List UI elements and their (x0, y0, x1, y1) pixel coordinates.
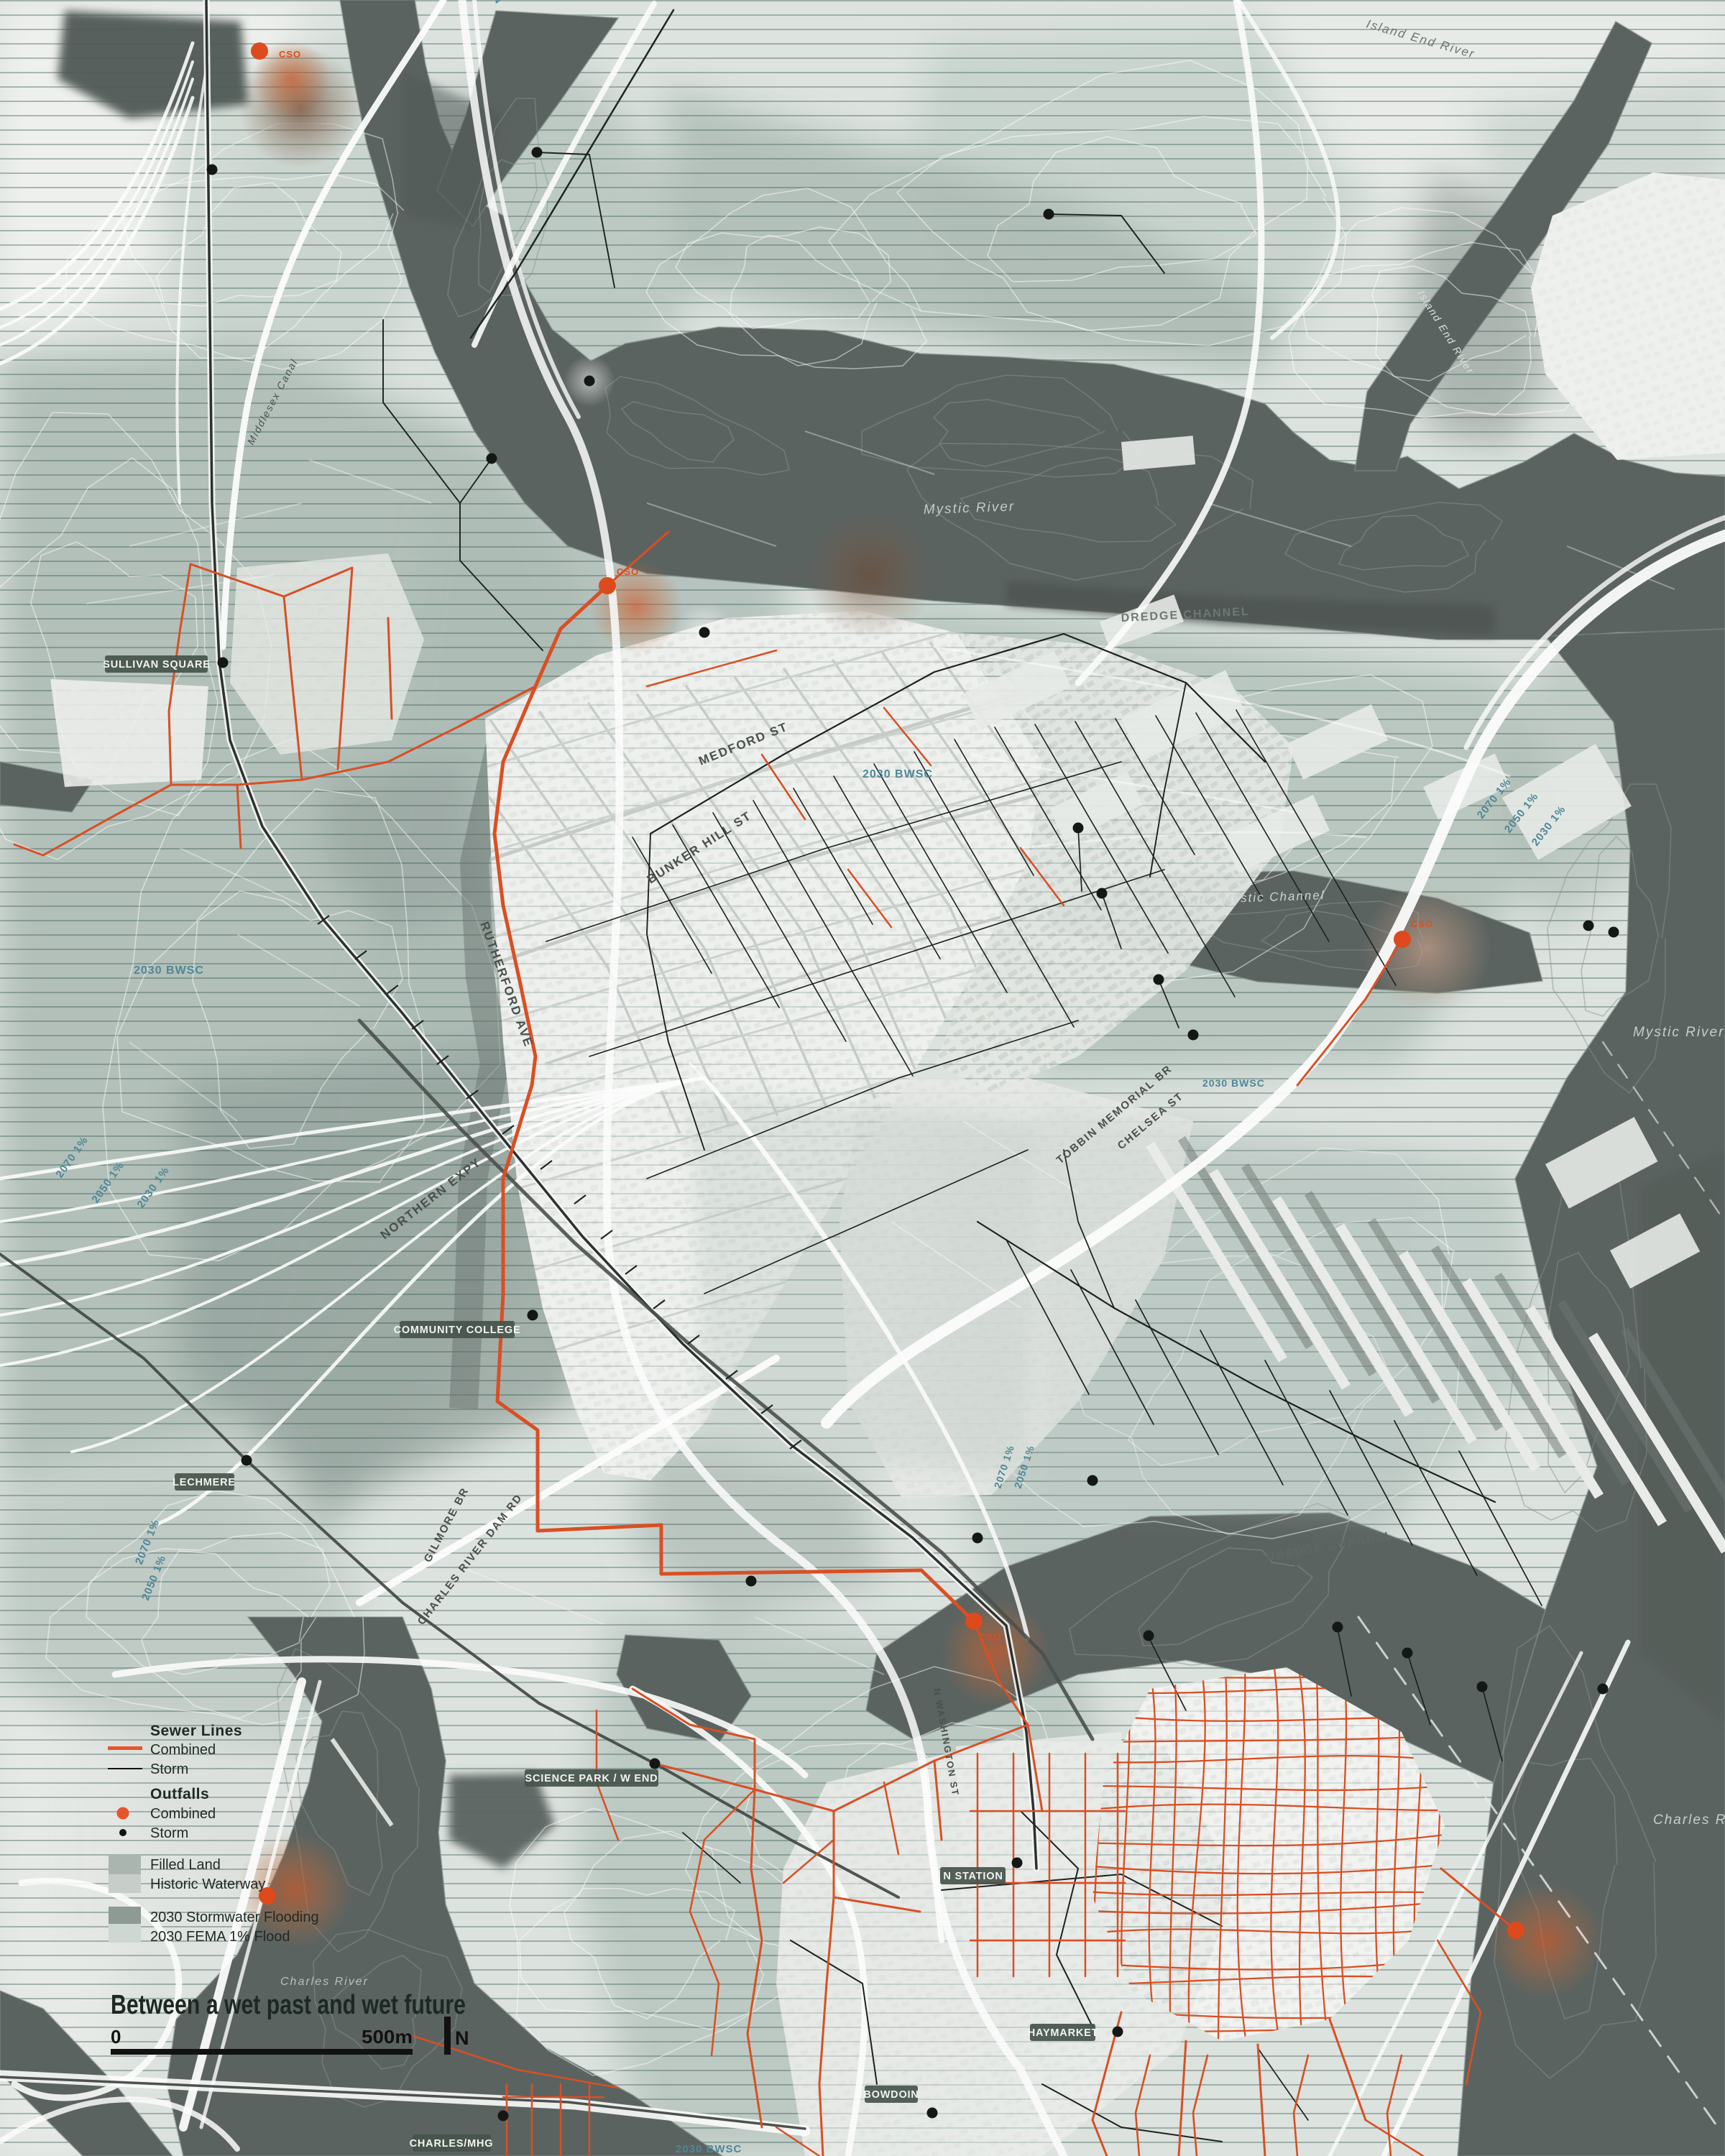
svg-text:HAYMARKET: HAYMARKET (1028, 2027, 1099, 2039)
svg-text:Storm: Storm (150, 1761, 188, 1777)
svg-text:CSO: CSO (979, 1631, 1001, 1642)
svg-text:2030 BWSC: 2030 BWSC (676, 2143, 742, 2155)
svg-text:SCIENCE PARK / W END: SCIENCE PARK / W END (525, 1773, 658, 1784)
svg-text:N: N (455, 2027, 469, 2049)
svg-text:Sewer Lines: Sewer Lines (150, 1723, 242, 1739)
svg-text:Filled Land: Filled Land (150, 1857, 221, 1873)
svg-text:Between a wet past and wet fut: Between a wet past and wet future (111, 1990, 466, 2020)
svg-text:CSO: CSO (279, 49, 301, 60)
svg-text:BOWDOIN: BOWDOIN (863, 2089, 919, 2101)
svg-text:CHARLES/MHG: CHARLES/MHG (410, 2138, 494, 2150)
svg-text:2030 Stormwater Flooding: 2030 Stormwater Flooding (150, 1909, 319, 1925)
svg-text:Outfalls: Outfalls (150, 1786, 209, 1802)
svg-text:COMMUNITY COLLEGE: COMMUNITY COLLEGE (394, 1325, 521, 1336)
svg-text:2030 BWSC: 2030 BWSC (134, 964, 204, 977)
svg-text:Combined: Combined (150, 1806, 216, 1822)
svg-text:N STATION: N STATION (943, 1871, 1003, 1882)
svg-text:Historic Waterway: Historic Waterway (150, 1876, 265, 1892)
svg-text:CSO: CSO (617, 566, 639, 577)
svg-text:Charles River: Charles River (1653, 1812, 1725, 1828)
svg-text:LECHMERE: LECHMERE (172, 1477, 236, 1488)
svg-text:SULLIVAN SQUARE: SULLIVAN SQUARE (103, 659, 211, 671)
svg-text:2030 BWSC: 2030 BWSC (1202, 1077, 1265, 1089)
svg-text:CSO: CSO (1411, 918, 1433, 929)
svg-text:Charles River: Charles River (280, 1976, 369, 1988)
svg-text:0: 0 (111, 2026, 121, 2047)
svg-text:2030 BWSC: 2030 BWSC (862, 768, 933, 780)
svg-text:Storm: Storm (150, 1825, 188, 1841)
svg-text:Mystic River: Mystic River (923, 499, 1015, 517)
svg-text:Mystic River: Mystic River (1633, 1025, 1724, 1040)
svg-text:500m: 500m (362, 2026, 413, 2047)
svg-text:2030 FEMA 1% Flood: 2030 FEMA 1% Flood (150, 1929, 290, 1945)
svg-text:Combined: Combined (150, 1742, 216, 1758)
